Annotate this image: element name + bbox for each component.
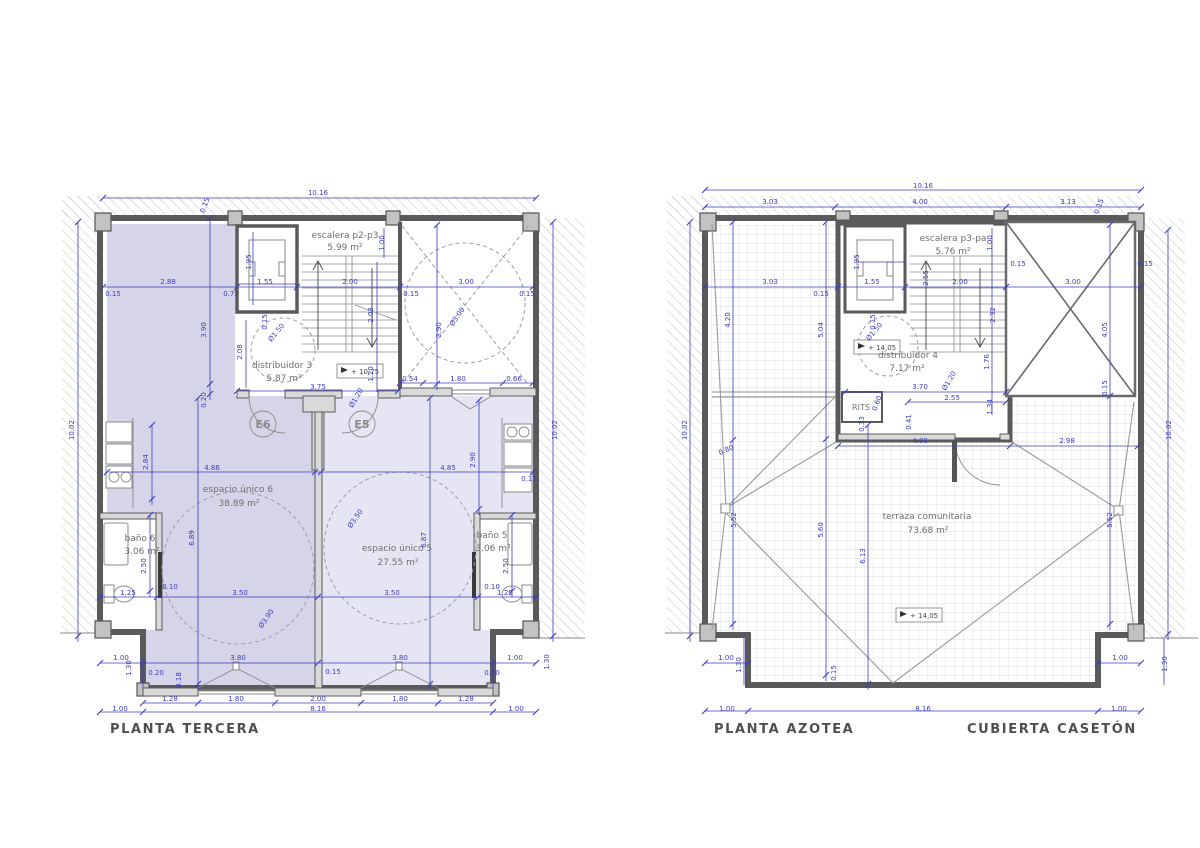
dim-label: 2.55 [922, 270, 930, 286]
dim-label: 1.80 [228, 695, 244, 703]
dim-label: 0.15 [813, 290, 829, 298]
room-area: 5.99 m² [327, 243, 363, 253]
roof-cross-brace [1006, 222, 1135, 396]
dim-label: 0.54 [402, 375, 418, 383]
dim-label: 1.28 [458, 695, 474, 703]
dim-label: 2.00 [342, 278, 358, 286]
dim-label: 5.04 [817, 322, 825, 338]
dim-label: 3.03 [762, 198, 778, 206]
svg-text:+ 14,05: + 14,05 [910, 612, 938, 620]
dim-label: 3.50 [384, 589, 400, 597]
dim-label: Ø3.00 [448, 306, 467, 328]
floor-plan-drawing: E6 E5 + 10,75 escalera p2-p3 5.99 m² dis… [0, 0, 1200, 848]
plan-title-right: PLANTA AZOTEA [714, 722, 854, 737]
dim-label: 4.85 [440, 464, 456, 472]
room-name: baño 5 [476, 531, 507, 541]
dim-label: 5.60 [817, 522, 825, 538]
dim-label: 3.50 [232, 589, 248, 597]
dim-label: 3.00 [458, 278, 474, 286]
dim-label: 2.84 [142, 454, 150, 470]
room-area: 73.68 m² [907, 526, 948, 536]
dim-label: 0.15 [325, 668, 341, 676]
dim-label: 2.32 [989, 307, 997, 323]
dim-label: 1.00 [508, 705, 524, 713]
dim-label: 3.75 [310, 383, 326, 391]
dim-label: 0.15 [261, 314, 269, 330]
dim-label: 1.80 [450, 375, 466, 383]
room-area: 5.76 m² [935, 247, 971, 257]
dim-label: 0.33 [858, 416, 866, 432]
level-marker: + 10,75 [337, 364, 383, 378]
dim-label: 2.00 [952, 278, 968, 286]
dim-label: 1.25 [497, 589, 513, 597]
dim-label: 1.80 [392, 695, 408, 703]
toilet-tank [104, 585, 114, 603]
room-area: 5.87 m² [266, 374, 302, 384]
dim-label: 0.15 [519, 290, 535, 298]
entrance-label: E6 [255, 418, 271, 431]
dim-label: 10.02 [551, 420, 559, 440]
dim-label: 1.00 [507, 654, 523, 662]
dim-label: 3.00 [1065, 278, 1081, 286]
dim-label: 2.03 [367, 307, 375, 323]
dim-label: 1.30 [543, 654, 551, 670]
dim-label: 1.30 [125, 660, 133, 676]
room-name: distribuidor 4 [878, 351, 938, 361]
dim-label: 0.10 [162, 583, 178, 591]
dim-label: 1.28 [162, 695, 178, 703]
dim-label: Ø1.20 [941, 370, 958, 392]
dim-label: 2.98 [1059, 437, 1075, 445]
dim-label: 2.00 [310, 695, 326, 703]
dim-label: 1.00 [1112, 654, 1128, 662]
dim-label: 5.52 [1106, 512, 1114, 528]
dim-label: 0.15 [1137, 260, 1153, 268]
dim-label: 10.16 [308, 189, 329, 197]
room-area: 38.89 m² [218, 499, 259, 509]
dim-label: 0.41 [905, 414, 913, 430]
dim-label: Ø1.50 [267, 322, 287, 343]
room-name: espacio único 6 [203, 485, 273, 495]
dim-label: 3.80 [230, 654, 246, 662]
dim-label: 3.80 [392, 654, 408, 662]
dim-label: 1.00 [1111, 705, 1127, 713]
drawing-sheet: E6 E5 + 10,75 escalera p2-p3 5.99 m² dis… [0, 0, 1200, 848]
dim-label: 0.20 [148, 669, 164, 677]
dim-label: 10.02 [681, 420, 689, 440]
dim-label: 1.95 [853, 254, 861, 270]
dim-label: 6.13 [859, 548, 867, 564]
dim-label: 10.02 [68, 420, 76, 440]
room-name: RITS [852, 403, 870, 412]
stair-treads [302, 256, 398, 352]
void-circle [405, 243, 525, 363]
hatch-area [536, 218, 585, 638]
dim-label: 2.50 [502, 558, 510, 574]
room-area: 3.06 m² [475, 544, 511, 554]
dim-label: 1.30 [735, 657, 743, 673]
dim-label: 4.00 [912, 198, 928, 206]
entrance-label: E5 [354, 418, 369, 431]
dim-label: 1.25 [120, 589, 136, 597]
dim-label: 5.52 [730, 512, 738, 528]
dim-label: 6.89 [188, 530, 196, 546]
room-area: 27.55 m² [377, 558, 418, 568]
dim-label: 1.20 [367, 366, 375, 382]
room-name: baño 6 [124, 534, 155, 544]
dim-label: 0.15 [403, 290, 419, 298]
level-marker: + 14,05 [896, 608, 942, 622]
floor-plan-left: E6 E5 + 10,75 escalera p2-p3 5.99 m² dis… [60, 189, 585, 715]
dim-label: 3.70 [912, 383, 928, 391]
plan-title-right-2: CUBIERTA CASETÓN [967, 721, 1137, 737]
dim-label: 1.00 [112, 705, 128, 713]
dim-label: 0.15 [1101, 380, 1109, 396]
dim-label: Ø1.50 [865, 321, 885, 342]
room-name: terraza comunitaria [883, 512, 972, 522]
dim-label: 2.55 [944, 394, 960, 402]
toilet-tank [522, 585, 532, 603]
dim-label: 1.34 [986, 399, 994, 415]
hatch-area [62, 196, 100, 633]
stair-arrows [921, 261, 985, 350]
dim-label: 2.90 [469, 452, 477, 468]
dim-label: 0.66 [506, 375, 522, 383]
hatch-area [667, 196, 705, 633]
shower-tray [104, 523, 128, 565]
dim-label: 0.75 [223, 290, 239, 298]
dim-label: 10.02 [1165, 420, 1173, 440]
dim-label: 2.88 [160, 278, 176, 286]
dim-label: 0.15 [830, 665, 838, 681]
dim-label: 0.15 [105, 290, 121, 298]
dim-label: 4.05 [1101, 322, 1109, 338]
column [303, 396, 335, 412]
void-diagonals [402, 226, 528, 384]
dim-label: 3.03 [762, 278, 778, 286]
dim-label: 4.00 [912, 437, 928, 445]
dim-label: 1.76 [983, 354, 991, 370]
dim-label: 4.20 [724, 312, 732, 328]
stair-arrows [313, 261, 377, 350]
door-leaf [158, 552, 162, 598]
dim-label: 2.08 [236, 344, 244, 360]
dim-label: 0.20 [484, 669, 500, 677]
dim-label: 3.13 [1060, 198, 1076, 206]
partition-wall [315, 412, 322, 692]
floor-plan-right: + 14,05 + 14,05 escalera p3-pa 5.76 m² d… [665, 182, 1198, 714]
room-name: distribuidor 3 [252, 361, 312, 371]
plan-title-left: PLANTA TERCERA [110, 722, 260, 737]
room-name: escalera p3-pa [920, 234, 987, 244]
dim-label: 0.18 [175, 672, 183, 688]
room-area: 3.06 m² [124, 547, 160, 557]
dim-label: 0.20 [200, 392, 208, 408]
dim-label: 1.30 [1161, 656, 1169, 672]
dim-label: 1.95 [245, 254, 253, 270]
dim-label: 1.55 [257, 278, 273, 286]
hatch-area [1141, 218, 1185, 638]
dim-label: 1.55 [864, 278, 880, 286]
dim-label: 0.15 [521, 475, 537, 483]
dim-label: 6.87 [420, 532, 428, 548]
dim-label: 1.00 [378, 235, 386, 251]
dim-label: 8.16 [915, 705, 931, 713]
dim-label: 1.00 [718, 654, 734, 662]
dim-label: 1.00 [986, 235, 994, 251]
dim-label: 10.16 [913, 182, 934, 190]
dim-label: 0.15 [1010, 260, 1026, 268]
dim-label: 8.16 [310, 705, 326, 713]
dim-label: 2.50 [140, 558, 148, 574]
room-name: escalera p2-p3 [312, 231, 379, 241]
dim-label: 4.86 [204, 464, 220, 472]
room-area: 7.17 m² [889, 364, 925, 374]
hatch-area [62, 196, 536, 218]
dim-label: 3.90 [435, 322, 443, 338]
dim-label: 3.90 [200, 322, 208, 338]
dim-label: 1.00 [719, 705, 735, 713]
